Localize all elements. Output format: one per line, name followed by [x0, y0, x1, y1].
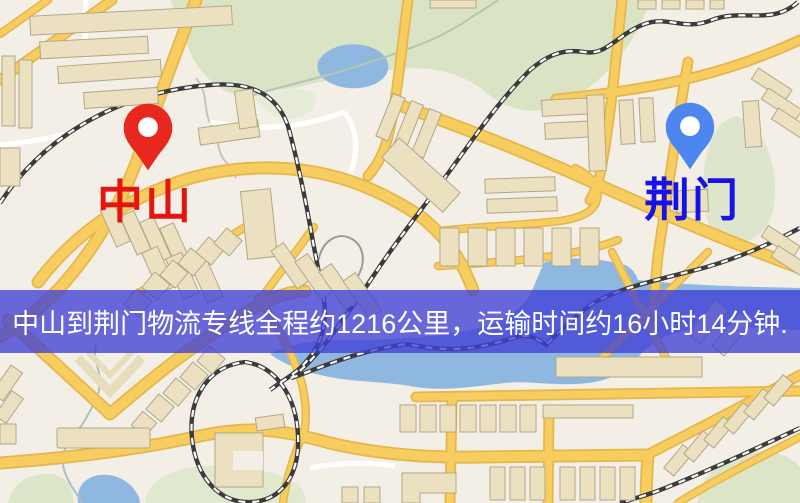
map-view[interactable]: 中山 荆门 中山到荆门物流专线全程约1216公里，运输时间约16小时14分钟.	[0, 0, 800, 503]
origin-pin[interactable]	[121, 100, 175, 174]
destination-pin[interactable]	[663, 101, 717, 171]
blue-map-pin-icon	[663, 101, 717, 171]
destination-label: 荆门	[644, 177, 740, 223]
route-info-text: 中山到荆门物流专线全程约1216公里，运输时间约16小时14分钟.	[12, 302, 788, 341]
red-map-pin-icon	[121, 100, 175, 174]
route-info-banner: 中山到荆门物流专线全程约1216公里，运输时间约16小时14分钟.	[0, 290, 800, 353]
map-canvas	[0, 0, 800, 503]
origin-label: 中山	[97, 179, 193, 225]
